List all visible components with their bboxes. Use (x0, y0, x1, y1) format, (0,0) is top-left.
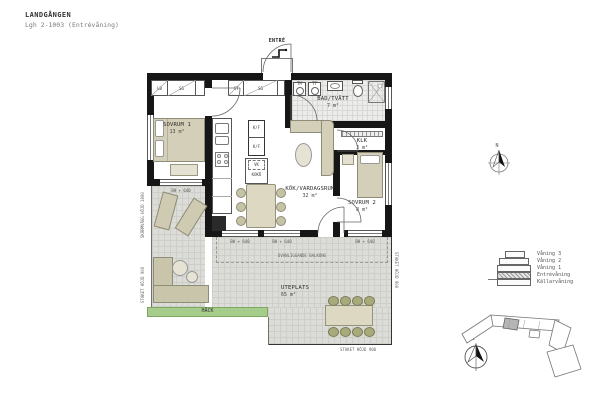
north-label-top: N (492, 143, 502, 149)
room-label-sovrum2: SOVRUM 2 8 m² (340, 200, 384, 213)
sill-label-4: BH + 640 (348, 239, 382, 244)
freezer-label: K/F (248, 138, 265, 156)
balcony-above-label: OVANLIGGANDE BALKONG (216, 254, 388, 258)
outdoor-chair (328, 296, 339, 306)
outdoor-chair (352, 327, 363, 337)
bench-sovrum1 (170, 164, 198, 176)
dryer-label: TT (308, 82, 321, 86)
dining-chair (276, 202, 286, 212)
outdoor-chair (364, 296, 375, 306)
north-compass-icon (488, 150, 510, 175)
coffee-table (295, 143, 312, 167)
window-living-1 (222, 230, 258, 237)
outdoor-chair (352, 296, 363, 306)
dining-chair (236, 216, 246, 226)
vk-label: VK (248, 160, 265, 170)
toilet-icon (352, 80, 363, 84)
dining-chair (236, 188, 246, 198)
window-sovrum2-south (348, 230, 382, 237)
fence-bottom-label: STAKET HÖJD 900 (322, 348, 394, 352)
outdoor-side-table (186, 271, 198, 283)
sill-label-2: BH + 640 (222, 239, 258, 244)
dining-chair (276, 216, 286, 226)
koko-label: KOKÖ (245, 173, 268, 177)
fridge-label: K/F (248, 120, 265, 138)
north-label-siteplan: N (468, 336, 478, 342)
entrance-recess (261, 58, 293, 73)
room-label-klk: KLK 3 m² (340, 138, 384, 151)
tall-cabinet (212, 216, 226, 231)
apartment-subtitle: Lgh 2-1003 (Entrévåning) (25, 21, 119, 29)
pillow (155, 140, 164, 157)
outdoor-dining-table (325, 305, 373, 326)
outdoor-chair (328, 327, 339, 337)
sink-icon (215, 123, 229, 134)
room-label-sovrum1: SOVRUM 1 13 m² (148, 122, 206, 135)
dining-table (246, 184, 276, 228)
siteplan-compass-icon (465, 343, 487, 371)
window-sovrum2-east (385, 163, 392, 205)
fence-left-label: STAKET HÖJD 900 (140, 267, 145, 303)
room-label-uteplats: UTEPLATS 65 m² (281, 285, 325, 298)
outdoor-sofa (153, 285, 209, 303)
legend-highlighted-floor (497, 272, 531, 279)
entrance-label: ENTRÉ (259, 38, 295, 44)
hedge-label: HÄCK (147, 308, 268, 314)
floorplan-page: LANDGÅNGEN Lgh 2-1003 (Entrévåning) HÄCK… (0, 0, 600, 400)
screen-left-label: SKÄRMVÄGG HÖJD 1800 (140, 192, 145, 238)
sofa-chaise (321, 120, 334, 176)
window-bathroom-east (385, 87, 392, 109)
sill-label-3: BH + 640 (264, 239, 300, 244)
entrance-symbol-icon (272, 49, 287, 57)
closet-sg-label: SG (168, 80, 196, 96)
bedside-table (342, 154, 354, 165)
window-living-2 (264, 230, 300, 237)
outdoor-chair (364, 327, 375, 337)
pillow (360, 155, 380, 164)
room-label-kokvardagsrum: KÖK/VARDAGSRUM 32 m² (278, 186, 342, 199)
window-sovrum1-south (160, 179, 202, 186)
closet-row-hall: ST SG (228, 80, 285, 96)
room-label-badtvatt: BAD/TVÄTT 7 m² (300, 96, 366, 109)
closet-st-label: ST (228, 80, 244, 96)
shower-icon (368, 81, 385, 103)
outdoor-chair (340, 296, 351, 306)
fence-right-label: STAKET HÖJD 900 (394, 252, 399, 288)
closet-row-sovrum1: LB SG (151, 80, 205, 96)
dining-chair (236, 202, 246, 212)
washing-machine-label: TM (293, 82, 306, 86)
siteplan-icon (462, 315, 581, 377)
closet-lb-label: LB (151, 80, 168, 96)
closet-sg2-label: SG (244, 80, 278, 96)
klk-wire-shelf (341, 131, 383, 137)
page-title: LANDGÅNGEN (25, 11, 71, 19)
outdoor-chair (340, 327, 351, 337)
